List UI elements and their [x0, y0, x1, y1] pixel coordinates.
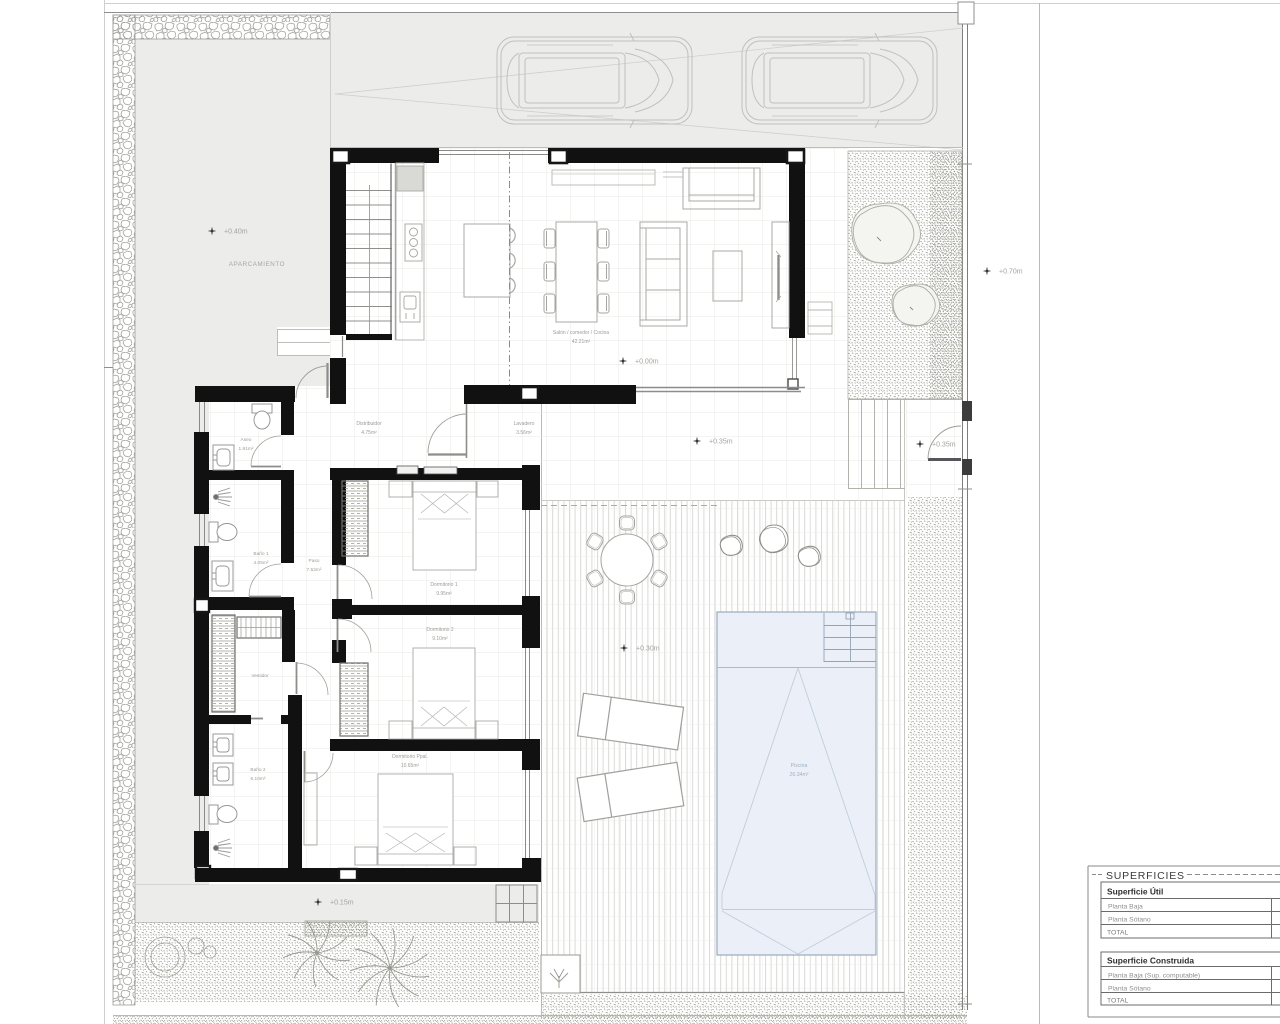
svg-text:Planta Baja (Sup. computable): Planta Baja (Sup. computable) [1108, 973, 1200, 980]
svg-text:+0.70m: +0.70m [999, 269, 1023, 276]
svg-text:Baño 1: Baño 1 [253, 551, 269, 557]
svg-text:+0.35m: +0.35m [709, 439, 733, 446]
svg-text:+0.40m: +0.40m [224, 229, 248, 236]
svg-text:4.75m²: 4.75m² [361, 430, 377, 436]
svg-text:3.56m²: 3.56m² [516, 430, 532, 436]
svg-text:Planta Sótano: Planta Sótano [1108, 986, 1151, 993]
svg-text:+0.15m: +0.15m [330, 900, 354, 907]
svg-text:Salón / comedor / Cocina: Salón / comedor / Cocina [553, 330, 609, 336]
svg-text:TOTAL: TOTAL [1107, 930, 1128, 937]
svg-text:Lavadero: Lavadero [514, 421, 535, 427]
svg-text:Planta Sótano: Planta Sótano [1108, 917, 1151, 924]
svg-text:26.34m²: 26.34m² [789, 772, 808, 778]
svg-text:9.10m²: 9.10m² [432, 636, 448, 642]
svg-text:Dormitorio 2: Dormitorio 2 [426, 627, 453, 633]
svg-text:SUPERFICIES: SUPERFICIES [1106, 870, 1185, 882]
svg-text:+0.35m: +0.35m [932, 442, 956, 449]
svg-text:Vestidor: Vestidor [251, 673, 269, 679]
svg-text:10.65m²: 10.65m² [401, 763, 420, 769]
svg-text:APARCAMIENTO: APARCAMIENTO [229, 261, 285, 268]
svg-text:9.95m²: 9.95m² [436, 591, 452, 597]
svg-text:+0.30m: +0.30m [636, 646, 660, 653]
svg-text:Dormitorio 1: Dormitorio 1 [430, 582, 457, 588]
svg-text:7.52m²: 7.52m² [307, 567, 322, 573]
svg-text:Planta Baja: Planta Baja [1108, 904, 1143, 911]
svg-text:Paso: Paso [309, 558, 320, 564]
svg-text:Piscina: Piscina [791, 763, 808, 769]
svg-text:5.10m²: 5.10m² [251, 776, 266, 782]
svg-text:1.91m²: 1.91m² [239, 446, 254, 452]
svg-text:Distribuidor: Distribuidor [356, 421, 382, 427]
svg-text:42.21m²: 42.21m² [572, 339, 591, 345]
svg-text:Superficie Construida: Superficie Construida [1107, 956, 1194, 966]
svg-text:Baño 2: Baño 2 [250, 767, 266, 773]
svg-text:Superficie Útil: Superficie Útil [1107, 886, 1163, 897]
svg-text:4.05m²: 4.05m² [254, 560, 269, 566]
svg-text:TOTAL: TOTAL [1107, 998, 1128, 1005]
svg-text:+0.00m: +0.00m [635, 359, 659, 366]
svg-text:Aseo: Aseo [241, 437, 252, 443]
svg-text:Dormitorio Ppal.: Dormitorio Ppal. [392, 754, 428, 760]
